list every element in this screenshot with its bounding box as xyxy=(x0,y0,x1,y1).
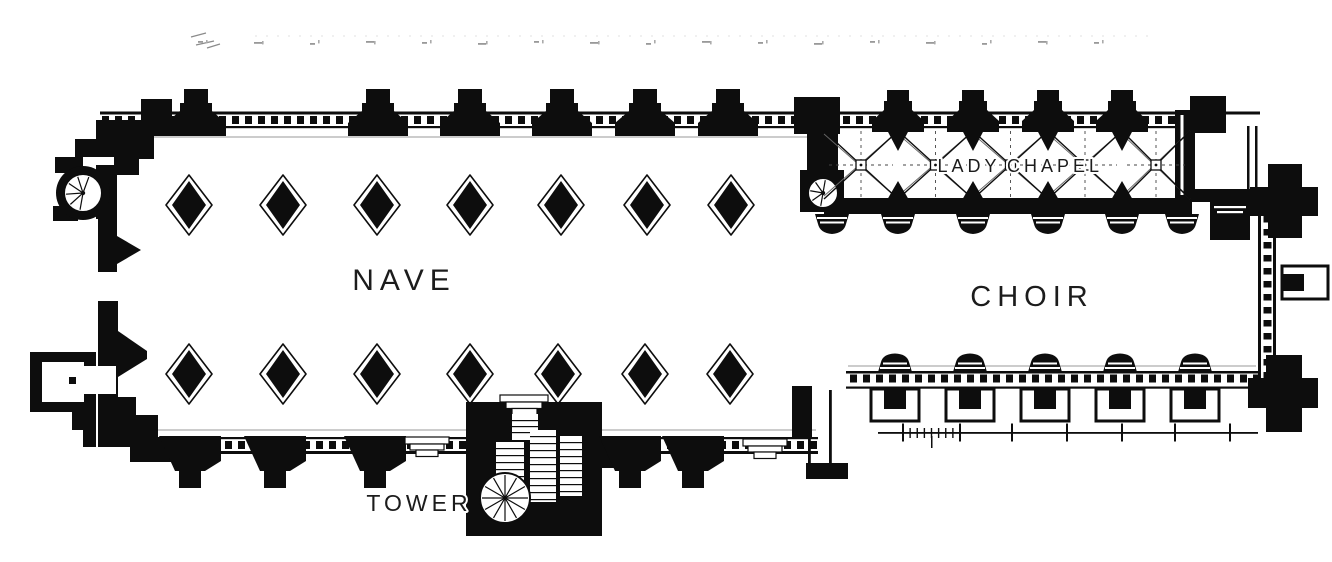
south-buttress-cap xyxy=(264,470,286,488)
faint-mark xyxy=(1046,41,1048,44)
respond-moulding xyxy=(958,363,982,365)
vault-boss-dot xyxy=(934,164,937,167)
faint-mark xyxy=(590,42,598,44)
vault-springer xyxy=(887,181,909,200)
mullion-dash xyxy=(297,116,304,124)
mullion-dash xyxy=(967,375,974,383)
vault-boss-dot xyxy=(860,164,863,167)
mullion-dash xyxy=(271,116,278,124)
north-buttress xyxy=(166,103,226,136)
mullion-dash xyxy=(856,116,863,124)
mullion-dash xyxy=(329,441,336,449)
mullion-dash xyxy=(1155,116,1162,124)
east-window-dash xyxy=(1264,333,1272,340)
label-tower: TOWER xyxy=(366,490,471,516)
pier xyxy=(266,181,300,229)
mullion-dash xyxy=(245,116,252,124)
faint-mark xyxy=(1102,40,1104,43)
floor-plan-drawing: NAVE CHOIR LADY CHAPEL TOWER xyxy=(0,0,1332,562)
east-window-dash xyxy=(1264,294,1272,301)
mullion-dash xyxy=(1214,375,1221,383)
choir-buttress-core xyxy=(1109,389,1131,409)
mullion-dash xyxy=(915,375,922,383)
pier xyxy=(360,350,394,398)
faint-mark xyxy=(1094,42,1099,44)
faint-mark xyxy=(486,41,488,44)
tread xyxy=(530,457,556,458)
chapel-buttress-cap xyxy=(962,90,984,103)
northeast-corner-mass xyxy=(1190,96,1226,133)
east-wall-buttress-core xyxy=(1282,274,1304,291)
south-wall-respond xyxy=(748,446,782,452)
south-porch-interior xyxy=(42,362,84,402)
south-junction-wall xyxy=(829,390,832,466)
mullion-dash xyxy=(954,375,961,383)
mullion-dash xyxy=(232,116,239,124)
floor-plan-canvas: NAVE CHOIR LADY CHAPEL TOWER xyxy=(0,0,1332,562)
north-buttress-cap xyxy=(366,89,390,104)
mullion-dash xyxy=(1188,375,1195,383)
tread xyxy=(560,491,582,492)
mullion-dash xyxy=(1240,375,1247,383)
label-lady: LADY xyxy=(937,156,1000,176)
faint-mark xyxy=(366,41,374,43)
faint-mark xyxy=(430,40,432,43)
mullion-dash xyxy=(843,116,850,124)
south-wall-respond xyxy=(405,437,449,444)
chapel-buttress xyxy=(947,101,999,132)
tread xyxy=(530,443,556,444)
respond-moulding xyxy=(1180,367,1210,369)
mullion-dash xyxy=(1077,116,1084,124)
scale-major-tick xyxy=(1229,424,1231,442)
junction-north-buttress xyxy=(794,97,840,134)
north-buttress-cap xyxy=(184,89,208,104)
southwest-step-buttress xyxy=(72,412,96,447)
respond-moulding xyxy=(883,363,907,365)
tread xyxy=(496,455,524,456)
mullion-dash xyxy=(863,375,870,383)
mullion-dash xyxy=(518,116,525,124)
northeast-recess-wall xyxy=(1247,126,1250,192)
mullion-dash xyxy=(1045,375,1052,383)
choir-buttress-core xyxy=(959,389,981,409)
mullion-dash xyxy=(258,116,265,124)
tread xyxy=(560,449,582,450)
mullion-dash xyxy=(889,375,896,383)
mullion-dash xyxy=(1006,375,1013,383)
south-wall-respond xyxy=(416,450,438,457)
chapel-buttress-cap xyxy=(887,90,909,103)
east-window-dash xyxy=(1264,307,1272,314)
label-choir: CHOIR xyxy=(970,281,1093,313)
mullion-dash xyxy=(687,116,694,124)
faint-mark xyxy=(990,40,992,43)
scale-minor-tick xyxy=(952,428,953,438)
tread xyxy=(560,477,582,478)
respond-moulding xyxy=(820,222,844,224)
vault-springer xyxy=(962,181,984,200)
mullion-dash xyxy=(810,441,817,449)
faint-mark xyxy=(478,43,486,45)
mullion-dash xyxy=(850,375,857,383)
east-window-dash xyxy=(1264,268,1272,275)
south-wall-respond xyxy=(754,452,776,459)
mullion-dash xyxy=(778,116,785,124)
pier xyxy=(172,350,206,398)
east-arcade-respond xyxy=(1210,198,1250,240)
west-wall-pier xyxy=(98,219,141,272)
pier xyxy=(453,350,487,398)
newel-dot xyxy=(821,191,825,195)
faint-mark xyxy=(766,40,768,43)
mullion-dash xyxy=(609,116,616,124)
respond-moulding xyxy=(883,217,913,219)
faint-smudge xyxy=(191,33,220,48)
stair-flight xyxy=(530,430,556,502)
mullion-dash xyxy=(797,441,804,449)
mullion-dash xyxy=(1019,375,1026,383)
tread xyxy=(530,492,556,493)
scale-major-tick xyxy=(1011,424,1013,442)
mullion-dash xyxy=(316,441,323,449)
tread xyxy=(530,499,556,500)
east-window-dash xyxy=(1264,320,1272,327)
mullion-dash xyxy=(1123,375,1130,383)
respond-moulding xyxy=(1214,206,1246,208)
faint-mark xyxy=(422,42,427,44)
respond-moulding xyxy=(1183,363,1207,365)
mullion-dash xyxy=(1097,375,1104,383)
chapel-buttress xyxy=(1022,101,1074,132)
respond-moulding xyxy=(1033,217,1063,219)
tread xyxy=(530,485,556,486)
tread xyxy=(530,478,556,479)
mullion-dash xyxy=(414,116,421,124)
south-junction-pier xyxy=(792,386,812,438)
mullion-dash xyxy=(459,441,466,449)
faint-mark xyxy=(926,42,934,44)
respond-moulding xyxy=(886,222,910,224)
mullion-dash xyxy=(505,116,512,124)
tower-arch-respond xyxy=(506,402,542,409)
faint-mark xyxy=(814,43,822,45)
scale-minor-tick xyxy=(924,428,925,438)
pier xyxy=(172,181,206,229)
top-margin-artifacts xyxy=(191,33,1148,48)
vault-boss-dot xyxy=(1155,164,1158,167)
faint-mark xyxy=(646,43,651,45)
porch-doorway xyxy=(83,366,116,394)
south-wall-respond xyxy=(743,439,787,446)
mullion-dash xyxy=(902,375,909,383)
mullion-dash xyxy=(765,116,772,124)
respond-moulding xyxy=(961,222,985,224)
respond-moulding xyxy=(955,367,985,369)
respond-moulding xyxy=(817,217,847,219)
faint-mark xyxy=(710,41,712,44)
scale-minor-tick xyxy=(945,428,946,438)
label-chapel: CHAPEL xyxy=(1007,156,1103,176)
mullion-dash xyxy=(238,441,245,449)
north-buttress xyxy=(698,103,758,136)
pier xyxy=(360,181,394,229)
chapel-buttress xyxy=(872,101,924,132)
tread xyxy=(512,420,538,421)
east-window-dash xyxy=(1264,281,1272,288)
scale-major-tick xyxy=(959,424,961,442)
respond-moulding xyxy=(1167,217,1197,219)
mullion-dash xyxy=(674,116,681,124)
mullion-dash xyxy=(1032,375,1039,383)
mullion-dash xyxy=(1012,116,1019,124)
respond-moulding xyxy=(1108,363,1132,365)
respond-moulding xyxy=(1217,211,1243,213)
mullion-dash xyxy=(310,116,317,124)
mullion-dash xyxy=(1162,375,1169,383)
mullion-dash xyxy=(1058,375,1065,383)
south-buttress xyxy=(662,436,724,471)
mullion-dash xyxy=(1227,375,1234,383)
scale-down-tick xyxy=(931,436,933,448)
north-buttress-cap xyxy=(458,89,482,104)
choir-east-wall-inner xyxy=(1258,206,1261,392)
pier xyxy=(713,350,747,398)
chapel-buttress xyxy=(1096,101,1148,132)
mullion-dash xyxy=(1149,375,1156,383)
choir-buttress-core xyxy=(884,389,906,409)
tread xyxy=(530,450,556,451)
east-window-dash xyxy=(1264,255,1272,262)
pier xyxy=(628,350,662,398)
tread xyxy=(530,436,556,437)
mullion-dash xyxy=(323,116,330,124)
south-buttress xyxy=(244,436,306,471)
faint-mark xyxy=(702,41,710,43)
mullion-dash xyxy=(999,116,1006,124)
faint-mark xyxy=(598,41,600,44)
nave-arcade-piers xyxy=(166,175,754,404)
vault-springer xyxy=(1111,130,1133,151)
scale-minor-tick xyxy=(917,428,918,438)
mullion-dash xyxy=(336,116,343,124)
scale-major-tick xyxy=(902,424,904,442)
tread xyxy=(496,469,524,470)
pier xyxy=(544,181,578,229)
south-buttress-cap xyxy=(364,470,386,488)
respond-moulding xyxy=(1110,222,1134,224)
southeast-cross-buttress xyxy=(1248,378,1318,408)
south-junction-foot xyxy=(806,463,848,479)
scale-bar xyxy=(878,424,1258,449)
faint-mark xyxy=(982,43,987,45)
mullion-dash xyxy=(928,375,935,383)
mullion-dash xyxy=(934,116,941,124)
respond-moulding xyxy=(1036,222,1060,224)
mullion-dash xyxy=(427,116,434,124)
tread xyxy=(560,442,582,443)
tread xyxy=(496,448,524,449)
respond-moulding xyxy=(1105,367,1135,369)
faint-mark xyxy=(654,40,656,43)
faint-mark xyxy=(934,41,936,44)
mullion-dash xyxy=(876,375,883,383)
stair-flight xyxy=(560,436,582,496)
south-buttress xyxy=(159,436,221,471)
faint-mark xyxy=(254,42,262,44)
choir-buttress-core xyxy=(1184,389,1206,409)
south-buttress xyxy=(344,436,406,471)
north-buttress xyxy=(440,103,500,136)
mullion-dash xyxy=(225,441,232,449)
tread xyxy=(512,426,538,427)
wall-core-line xyxy=(1181,115,1184,195)
chapel-buttress-cap xyxy=(1111,90,1133,103)
tread xyxy=(560,470,582,471)
faint-mark xyxy=(822,41,824,44)
north-buttress xyxy=(348,103,408,136)
tread xyxy=(560,456,582,457)
faint-mark xyxy=(198,41,203,43)
mullion-dash xyxy=(732,441,739,449)
northeast-recess-wall xyxy=(1255,126,1258,192)
faint-mark xyxy=(1038,41,1046,43)
mullion-dash xyxy=(941,375,948,383)
vault-springer xyxy=(1037,181,1059,200)
tread xyxy=(496,462,524,463)
tread xyxy=(560,484,582,485)
pier xyxy=(714,181,748,229)
respond-moulding xyxy=(1107,217,1137,219)
mullion-dash xyxy=(1175,375,1182,383)
mullion-dash xyxy=(1168,116,1175,124)
faint-mark xyxy=(374,41,376,44)
mullion-dash xyxy=(1201,375,1208,383)
north-buttress-cap xyxy=(550,89,574,104)
mullion-dash xyxy=(1071,375,1078,383)
north-buttress-cap xyxy=(633,89,657,104)
faint-mark xyxy=(534,41,539,43)
faint-mark xyxy=(758,42,763,44)
north-buttress xyxy=(532,103,592,136)
south-wall-respond xyxy=(410,444,444,450)
pier xyxy=(266,350,300,398)
mullion-dash xyxy=(993,375,1000,383)
mullion-dash xyxy=(284,116,291,124)
scale-major-tick xyxy=(1121,424,1123,442)
lady-chapel-arcade-wall xyxy=(824,198,1192,214)
respond-moulding xyxy=(958,217,988,219)
tread xyxy=(560,463,582,464)
pier xyxy=(453,181,487,229)
scale-major-tick xyxy=(1066,424,1068,442)
mullion-dash xyxy=(1090,116,1097,124)
mullion-dash xyxy=(1136,375,1143,383)
scale-minor-tick xyxy=(938,428,939,438)
respond-moulding xyxy=(1030,367,1060,369)
south-buttress-cap xyxy=(619,470,641,488)
faint-mark xyxy=(262,41,264,44)
tower-arch-respond xyxy=(500,395,548,402)
northeast-cross-buttress xyxy=(1250,187,1318,216)
choir-south-buttresses xyxy=(871,389,1219,421)
mullion-dash xyxy=(980,375,987,383)
mullion-dash xyxy=(1084,375,1091,383)
faint-mark xyxy=(318,40,320,43)
north-buttress-cap xyxy=(716,89,740,104)
newel-dot xyxy=(81,191,85,195)
faint-mark xyxy=(206,40,208,43)
faint-mark xyxy=(870,41,875,43)
faint-mark xyxy=(310,43,315,45)
faint-mark xyxy=(542,40,544,43)
label-nave: NAVE xyxy=(352,264,455,297)
porch-detail xyxy=(69,377,76,384)
chapel-buttress-cap xyxy=(1037,90,1059,103)
scale-major-tick xyxy=(1174,424,1176,442)
east-window-dash xyxy=(1264,242,1272,249)
mullion-dash xyxy=(1110,375,1117,383)
south-buttress-cap xyxy=(682,470,704,488)
respond-moulding xyxy=(880,367,910,369)
respond-moulding xyxy=(1033,363,1057,365)
newel-dot xyxy=(503,496,507,500)
faint-mark xyxy=(878,40,880,43)
pier xyxy=(541,350,575,398)
tread xyxy=(530,471,556,472)
respond-moulding xyxy=(1170,222,1194,224)
mullion-dash xyxy=(596,116,603,124)
choir-buttress-core xyxy=(1034,389,1056,409)
pier xyxy=(630,181,664,229)
south-buttress-cap xyxy=(179,470,201,488)
tread xyxy=(530,464,556,465)
east-window-dash xyxy=(1264,346,1272,353)
north-buttress xyxy=(615,103,675,136)
scale-minor-tick xyxy=(909,428,910,438)
